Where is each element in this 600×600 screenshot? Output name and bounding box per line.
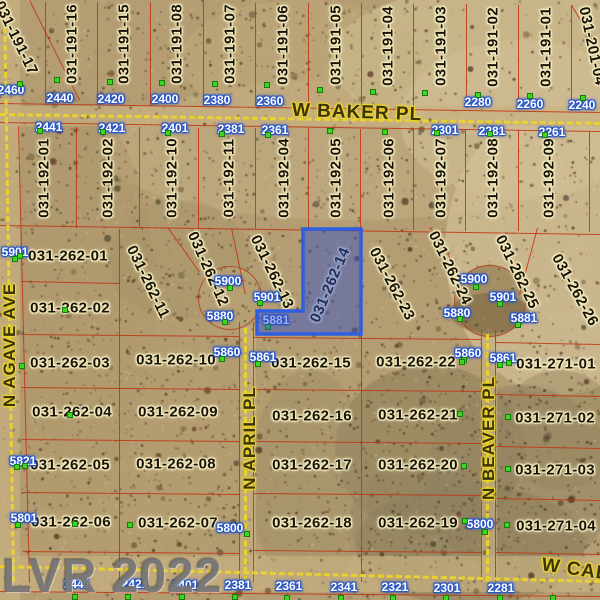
watermark: LVR 2022 (2, 549, 223, 600)
selection-layer (0, 0, 600, 600)
selected-parcel[interactable] (257, 229, 361, 334)
parcel-map[interactable]: 031-191-17031-191-16031-191-15031-191-08… (0, 0, 600, 600)
